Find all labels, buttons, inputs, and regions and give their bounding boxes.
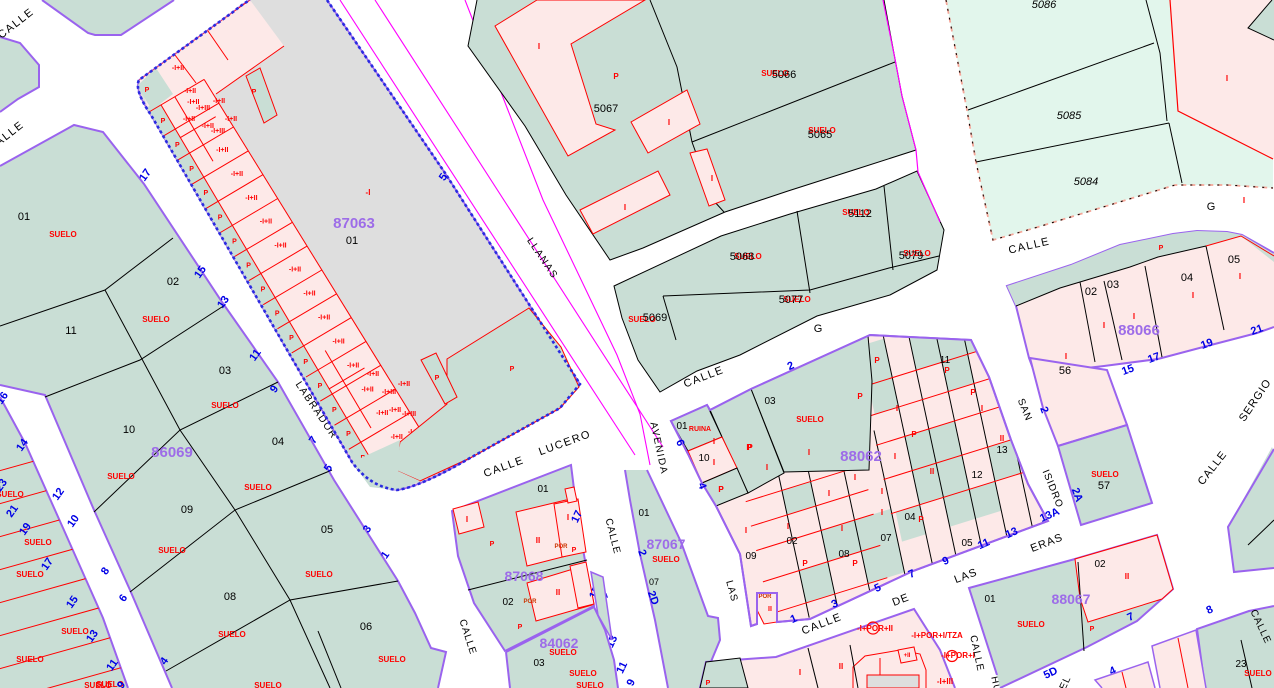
svg-text:P: P — [613, 72, 619, 81]
svg-text:I: I — [713, 437, 715, 446]
svg-text:-I+III: -I+III — [211, 128, 225, 135]
svg-text:P: P — [518, 624, 523, 631]
svg-text:03: 03 — [219, 365, 231, 377]
svg-text:-I+II: -I+II — [172, 65, 184, 72]
svg-text:I: I — [711, 174, 713, 183]
svg-text:G: G — [814, 323, 823, 335]
svg-text:01: 01 — [346, 235, 358, 247]
svg-text:87067: 87067 — [647, 536, 686, 552]
svg-text:SUELO: SUELO — [107, 472, 135, 481]
svg-text:II: II — [556, 588, 560, 597]
svg-text:-I+II: -I+II — [184, 88, 196, 95]
svg-text:SUELO: SUELO — [305, 570, 333, 579]
svg-text:P: P — [970, 388, 976, 397]
svg-text:P: P — [918, 515, 924, 524]
svg-text:01: 01 — [537, 484, 549, 495]
svg-text:04: 04 — [904, 512, 916, 523]
svg-text:10: 10 — [698, 453, 710, 464]
svg-text:SUELO: SUELO — [378, 655, 406, 664]
svg-text:I: I — [1133, 312, 1135, 321]
svg-text:-I+II: -I+II — [361, 386, 373, 393]
svg-text:88066: 88066 — [1118, 322, 1160, 339]
svg-text:01: 01 — [676, 421, 688, 432]
svg-text:56: 56 — [1059, 365, 1071, 377]
svg-text:02: 02 — [167, 276, 179, 288]
svg-text:POR: POR — [758, 594, 772, 600]
svg-text:I: I — [854, 473, 856, 482]
svg-text:POR: POR — [523, 599, 537, 605]
svg-text:SUELO: SUELO — [1091, 470, 1119, 479]
svg-text:II: II — [839, 662, 843, 671]
svg-text:11: 11 — [940, 355, 951, 366]
svg-text:02: 02 — [502, 597, 514, 608]
svg-text:II: II — [1000, 434, 1004, 443]
svg-text:04: 04 — [1181, 272, 1193, 284]
svg-text:P: P — [435, 375, 440, 382]
svg-text:I: I — [881, 487, 883, 496]
svg-text:88062: 88062 — [840, 448, 882, 465]
svg-text:-I+II: -I+II — [398, 381, 410, 388]
svg-text:P: P — [874, 356, 880, 365]
svg-text:5079: 5079 — [899, 250, 923, 262]
svg-text:I: I — [841, 524, 843, 533]
svg-text:02: 02 — [1085, 286, 1097, 298]
svg-text:P: P — [289, 335, 294, 342]
svg-text:-I+II: -I+II — [231, 171, 243, 178]
svg-text:P: P — [346, 431, 351, 438]
svg-text:P: P — [161, 118, 166, 125]
svg-text:P: P — [510, 366, 515, 373]
svg-text:03: 03 — [764, 396, 776, 407]
svg-text:5085: 5085 — [1057, 110, 1082, 122]
svg-text:P: P — [232, 238, 237, 245]
svg-text:06: 06 — [360, 621, 372, 633]
svg-text:I: I — [1239, 272, 1241, 281]
svg-text:I: I — [1103, 321, 1105, 330]
svg-text:II: II — [768, 606, 772, 613]
svg-text:P: P — [1090, 626, 1095, 633]
svg-text:I: I — [828, 489, 830, 498]
svg-text:RUINA: RUINA — [689, 426, 711, 433]
svg-text:09: 09 — [745, 551, 757, 562]
svg-text:SUELO: SUELO — [576, 681, 604, 688]
svg-text:-I+II: -I+II — [389, 407, 401, 414]
svg-text:SUELO: SUELO — [244, 483, 272, 492]
svg-text:-I: -I — [366, 188, 371, 197]
svg-text:P: P — [802, 559, 808, 568]
svg-text:I: I — [981, 404, 983, 413]
svg-text:I: I — [713, 458, 715, 467]
svg-text:P: P — [332, 407, 337, 414]
svg-text:P: P — [718, 485, 724, 494]
svg-text:-I+II: -I+II — [376, 410, 388, 417]
svg-text:-I+III: -I+III — [382, 389, 396, 396]
svg-text:P: P — [145, 87, 150, 94]
svg-text:08: 08 — [224, 591, 236, 603]
svg-text:P: P — [246, 263, 251, 270]
svg-text:SUELO: SUELO — [549, 648, 577, 657]
svg-text:I: I — [787, 522, 789, 531]
svg-text:I: I — [567, 513, 569, 522]
svg-text:SUELO: SUELO — [142, 315, 170, 324]
svg-text:P: P — [746, 443, 752, 452]
svg-text:5069: 5069 — [643, 312, 667, 324]
svg-text:I: I — [624, 203, 626, 212]
svg-text:08: 08 — [838, 549, 850, 560]
svg-text:03: 03 — [1107, 279, 1119, 291]
svg-text:P: P — [706, 680, 711, 687]
svg-text:5065: 5065 — [808, 129, 832, 141]
svg-text:SUELO: SUELO — [158, 546, 186, 555]
svg-text:87068: 87068 — [505, 568, 544, 584]
svg-text:5068: 5068 — [730, 251, 754, 263]
svg-text:5077: 5077 — [779, 294, 803, 306]
svg-text:G: G — [1207, 201, 1216, 213]
svg-text:P: P — [490, 541, 495, 548]
svg-text:I: I — [745, 526, 747, 535]
svg-text:09: 09 — [181, 504, 193, 516]
svg-text:5086: 5086 — [1032, 0, 1057, 11]
svg-text:II: II — [536, 536, 540, 545]
svg-text:I: I — [1243, 196, 1245, 205]
svg-text:-I+II: -I+II — [216, 147, 228, 154]
svg-text:-I+II: -I+II — [183, 116, 195, 123]
svg-text:SUELO: SUELO — [1017, 620, 1045, 629]
svg-text:05: 05 — [1228, 254, 1240, 266]
svg-text:POR: POR — [554, 544, 568, 550]
svg-text:SUELO: SUELO — [254, 681, 282, 688]
svg-text:I: I — [668, 118, 670, 127]
svg-text:-I+II: -I+II — [289, 267, 301, 274]
svg-text:02: 02 — [1094, 559, 1106, 570]
svg-text:01: 01 — [18, 211, 30, 223]
svg-text:12: 12 — [971, 470, 983, 481]
svg-text:P: P — [944, 366, 950, 375]
svg-text:SUELO: SUELO — [218, 630, 246, 639]
svg-text:86069: 86069 — [151, 444, 193, 461]
svg-text:SUELO: SUELO — [1244, 669, 1272, 678]
svg-text:I: I — [881, 508, 883, 517]
svg-text:11: 11 — [65, 325, 76, 337]
svg-text:05: 05 — [321, 524, 333, 536]
svg-text:-I+II: -I+II — [213, 98, 225, 105]
svg-text:07: 07 — [880, 533, 892, 544]
svg-text:01: 01 — [638, 508, 650, 519]
svg-text:-I+POR+I/TZA: -I+POR+I/TZA — [911, 631, 963, 640]
svg-text:13: 13 — [996, 445, 1008, 456]
svg-text:I: I — [896, 404, 898, 413]
svg-text:P: P — [911, 430, 917, 439]
svg-text:5067: 5067 — [594, 103, 618, 115]
svg-text:I: I — [766, 463, 768, 472]
svg-text:5066: 5066 — [772, 69, 796, 81]
svg-text:P: P — [1159, 245, 1164, 252]
svg-text:-I+II: -I+II — [245, 195, 257, 202]
svg-text:03: 03 — [533, 658, 545, 669]
svg-text:-I+II: -I+II — [225, 116, 237, 123]
svg-text:P: P — [572, 547, 577, 554]
svg-text:I: I — [538, 42, 540, 51]
svg-text:-I+III: -I+III — [196, 105, 210, 112]
svg-text:SUELO: SUELO — [49, 230, 77, 239]
svg-text:-I+II: -I+II — [318, 315, 330, 322]
svg-text:I: I — [1226, 74, 1228, 83]
svg-text:I: I — [1192, 291, 1194, 300]
svg-text:SUELO: SUELO — [24, 538, 52, 547]
svg-text:-I+III: -I+III — [937, 677, 953, 686]
svg-text:II: II — [930, 467, 934, 476]
svg-text:87063: 87063 — [333, 215, 375, 232]
svg-text:88067: 88067 — [1052, 591, 1091, 607]
svg-text:P: P — [203, 190, 208, 197]
svg-text:-I+II: -I+II — [274, 243, 286, 250]
svg-text:5084: 5084 — [1074, 176, 1098, 188]
svg-text:+II: +II — [904, 653, 911, 659]
svg-text:SUELO: SUELO — [16, 570, 44, 579]
svg-text:57: 57 — [1098, 480, 1110, 492]
svg-text:-I+II: -I+II — [367, 371, 379, 378]
svg-text:I: I — [799, 668, 801, 677]
svg-text:P: P — [857, 392, 863, 401]
svg-text:04: 04 — [272, 436, 284, 448]
svg-text:-I+II: -I+II — [260, 219, 272, 226]
svg-text:P: P — [189, 166, 194, 173]
svg-text:P: P — [852, 559, 858, 568]
svg-text:II: II — [1125, 572, 1129, 581]
svg-text:-I+II: -I+II — [347, 362, 359, 369]
svg-text:I: I — [1065, 352, 1067, 361]
svg-text:P: P — [218, 214, 223, 221]
svg-text:5112: 5112 — [848, 208, 872, 220]
svg-text:SUELO: SUELO — [796, 415, 824, 424]
svg-text:SUELO: SUELO — [61, 627, 89, 636]
svg-text:P: P — [303, 359, 308, 366]
svg-text:01: 01 — [984, 594, 996, 605]
svg-text:SUELO: SUELO — [569, 669, 597, 678]
svg-text:P: P — [275, 311, 280, 318]
svg-text:SUELO: SUELO — [16, 655, 44, 664]
svg-text:02: 02 — [786, 536, 798, 547]
svg-text:P: P — [261, 287, 266, 294]
svg-text:05: 05 — [961, 538, 973, 549]
svg-text:-I+POR+II: -I+POR+II — [857, 624, 893, 633]
svg-text:-I+III: -I+III — [402, 411, 416, 418]
svg-text:SUELO: SUELO — [652, 555, 680, 564]
svg-text:10: 10 — [123, 424, 135, 436]
svg-text:I: I — [808, 448, 810, 457]
svg-text:I: I — [894, 452, 896, 461]
svg-text:P: P — [318, 383, 323, 390]
svg-text:-I+II: -I+II — [391, 434, 403, 441]
svg-text:SUELO: SUELO — [211, 401, 239, 410]
svg-text:P: P — [175, 142, 180, 149]
svg-text:07: 07 — [649, 577, 659, 587]
svg-text:P: P — [252, 89, 257, 96]
svg-text:-I+II: -I+II — [303, 291, 315, 298]
svg-text:I: I — [466, 515, 468, 524]
svg-text:-I+II: -I+II — [332, 338, 344, 345]
